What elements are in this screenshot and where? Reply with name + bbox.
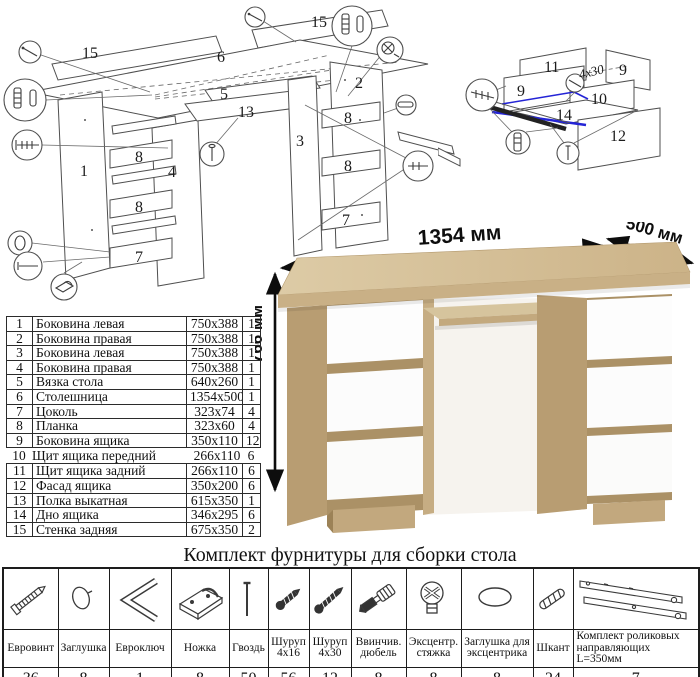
table-row: 2Боковина правая750x3881: [7, 331, 261, 346]
parts-table-lower: 11Щит ящика задний266x1106 12Фасад ящика…: [6, 463, 261, 537]
part-num: 14: [7, 508, 33, 523]
side-panel-1: [58, 92, 110, 280]
part-label-9-right: 9: [619, 62, 627, 79]
part-qty: 2: [243, 522, 261, 537]
part-size: 750x388: [187, 346, 243, 361]
furniture-foot-icon: [172, 571, 228, 627]
part-num: 10: [6, 448, 32, 463]
part-num: 5: [7, 375, 33, 390]
part-size: 346x295: [187, 508, 243, 523]
hardware-qty: 12: [309, 667, 351, 677]
part-label-6: 6: [217, 49, 225, 66]
hardware-name: Эксцентр. стяжка: [406, 630, 461, 668]
part-label-12: 12: [610, 128, 626, 145]
table-row: 9Боковина ящика350x11012: [7, 433, 261, 448]
table-row: 15Стенка задняя675x3502: [7, 522, 261, 537]
hardware-name: Ножка: [171, 630, 229, 668]
part-size: 750x388: [187, 317, 243, 332]
part-qty: 1: [243, 346, 261, 361]
part-num: 4: [7, 360, 33, 375]
part-qty: 6: [243, 508, 261, 523]
part-label-5: 5: [220, 86, 228, 103]
parts-table-upper: 1Боковина левая750x3881 2Боковина правая…: [6, 316, 261, 448]
table-row: 12Фасад ящика350x2006: [7, 478, 261, 493]
table-row: 8Планка323x604: [7, 419, 261, 434]
part-size: 750x388: [187, 331, 243, 346]
hardware-qty: 8: [58, 667, 109, 677]
hardware-name: Евроключ: [109, 630, 171, 668]
assembly-instruction-sheet: 15 15 6 1 2 3 4 5 13 8 8 8 8 7 7: [0, 0, 700, 677]
part-qty: 1: [243, 389, 261, 404]
part-label-11: 11: [544, 59, 559, 76]
part-num: 12: [7, 478, 33, 493]
part-name: Боковина правая: [33, 360, 187, 375]
roller-guide-callout: [466, 79, 498, 111]
part-label-10: 10: [591, 91, 607, 108]
part-name: Полка выкатная: [33, 493, 187, 508]
table-row: 1Боковина левая750x3881: [7, 317, 261, 332]
hardware-table: Евровинт Заглушка Евроключ Ножка Гвоздь …: [2, 567, 700, 677]
part-num: 6: [7, 389, 33, 404]
part-size: 675x350: [187, 522, 243, 537]
part-label-2: 2: [355, 75, 363, 92]
part-name: Боковина правая: [33, 331, 187, 346]
cam-cover-icon: [462, 571, 528, 627]
part-size: 750x388: [187, 360, 243, 375]
part-label-13: 13: [238, 104, 254, 121]
table-row: 3Боковина левая750x3881: [7, 346, 261, 361]
parts-table: 1Боковина левая750x3881 2Боковина правая…: [6, 316, 262, 537]
part-num: 13: [7, 493, 33, 508]
part-qty: 6: [243, 464, 261, 479]
part-name: Щит ящика задний: [33, 464, 187, 479]
part-label-8b: 8: [135, 199, 143, 216]
screw-vertical-callout: [200, 142, 224, 166]
table-row: 4Боковина правая750x3881: [7, 360, 261, 375]
hardware-qty: 8: [406, 667, 461, 677]
eccentric-callout: [377, 37, 403, 63]
part-num: 8: [7, 419, 33, 434]
part-name: Стенка задняя: [33, 522, 187, 537]
hardware-name: Комплект роликовых направляющих L=350мм: [573, 630, 699, 668]
part-name: Боковина левая: [33, 317, 187, 332]
table-row: 11Щит ящика задний266x1106: [7, 464, 261, 479]
hardware-qty: 50: [229, 667, 268, 677]
hardware-qty: 1: [109, 667, 171, 677]
part-name: Вязка стола: [33, 375, 187, 390]
part-qty: 1: [243, 331, 261, 346]
hardware-qty: 8: [171, 667, 229, 677]
hardware-icons-row: [3, 568, 699, 630]
foot-callout: [51, 274, 77, 300]
hardware-name: Шуруп 4x16: [268, 630, 309, 668]
part-qty: 1: [243, 317, 261, 332]
part-num: 9: [7, 433, 33, 448]
part-name: Цоколь: [33, 404, 187, 419]
part-label-15-left: 15: [82, 45, 98, 62]
wood-dowel-icon: [534, 571, 570, 627]
table-row: 7Цоколь323x744: [7, 404, 261, 419]
part-label-1: 1: [80, 163, 88, 180]
part-size: 350x110: [187, 433, 243, 448]
part-num: 11: [7, 464, 33, 479]
table-row: 13Полка выкатная615x3501: [7, 493, 261, 508]
hardware-name: Заглушка: [58, 630, 109, 668]
dowel-screw-callout: [506, 130, 530, 154]
table-row: 5Вязка стола640x2601: [7, 375, 261, 390]
screw-in-dowel-icon: [352, 571, 404, 627]
nail-callout: [557, 142, 579, 164]
part-qty: 1: [243, 360, 261, 375]
hardware-qty: 56: [268, 667, 309, 677]
part-name: Фасад ящика: [33, 478, 187, 493]
hardware-qty: 8: [351, 667, 406, 677]
confirmat-callout: [12, 130, 42, 160]
desk-body: [278, 242, 690, 533]
part-num: 3: [7, 346, 33, 361]
nail-icon: [230, 571, 264, 627]
confirmat-screw-icon: [4, 571, 54, 627]
hardware-name: Шкант: [533, 630, 573, 668]
part-num: 7: [7, 404, 33, 419]
part-name: Боковина ящика: [33, 433, 187, 448]
part-label-9-left: 9: [517, 83, 525, 100]
part-label-7-left: 7: [135, 249, 143, 266]
part-name: Планка: [33, 419, 187, 434]
nail-callout: [19, 41, 41, 63]
part-qty: 1: [243, 493, 261, 508]
hardware-qty: 24: [533, 667, 573, 677]
part-label-14: 14: [556, 107, 572, 124]
eccentric-cam-icon: [407, 571, 457, 627]
part-qty: 6: [243, 478, 261, 493]
hardware-qty: 7: [573, 667, 699, 677]
hardware-qty: 36: [3, 667, 58, 677]
hardware-name: Евровинт: [3, 630, 58, 668]
part-qty: 12: [243, 433, 261, 448]
part-label-4: 4: [168, 164, 176, 181]
screw-large-icon: [310, 571, 350, 627]
hex-key-icon: [110, 571, 168, 627]
hardware-qty-row: 36 8 1 8 50 56 12 8 8 8 24 7: [3, 667, 699, 677]
part-size: 323x60: [187, 419, 243, 434]
part-label-8a: 8: [135, 149, 143, 166]
part-name: Столешница: [33, 389, 187, 404]
rail-fragment: [438, 148, 460, 166]
cap-callout: [8, 231, 32, 255]
desk-photo: 1354 мм 500 мм 766 мм: [255, 222, 700, 540]
screw-callout: [14, 252, 42, 280]
part-size: 640x260: [187, 375, 243, 390]
part-label-8c: 8: [344, 110, 352, 127]
dowel-screw-callout: [403, 151, 433, 181]
part-num: 15: [7, 522, 33, 537]
hardware-qty: 8: [461, 667, 533, 677]
part-size: 1354x500: [187, 389, 243, 404]
part-label-8d: 8: [344, 158, 352, 175]
part-name: Боковина левая: [33, 346, 187, 361]
hardware-names-row: Евровинт Заглушка Евроключ Ножка Гвоздь …: [3, 630, 699, 668]
hardware-name: Гвоздь: [229, 630, 268, 668]
part-qty: 6: [242, 448, 260, 463]
part-qty: 4: [243, 419, 261, 434]
part-size: 266x110: [187, 464, 243, 479]
part-qty: 1: [243, 375, 261, 390]
part-size: 323x74: [187, 404, 243, 419]
cap-plug-icon: [59, 571, 105, 627]
part-name: Дно ящика: [33, 508, 187, 523]
part-name: Щит ящика передний: [32, 448, 192, 463]
part-num: 1: [7, 317, 33, 332]
roller-guides-icon: [574, 571, 694, 627]
part-size: 615x350: [187, 493, 243, 508]
part-label-15-right: 15: [311, 14, 327, 31]
nail-callout-2: [245, 7, 265, 27]
part-qty: 4: [243, 404, 261, 419]
dowel-callout: [4, 79, 46, 121]
part-num: 2: [7, 331, 33, 346]
dowel-pair-callout: [332, 6, 372, 46]
hardware-title: Комплект фурнитуры для сборки стола: [0, 544, 700, 567]
drawer-exploded-diagram: 11 9 9 10 14 12 4x30: [438, 28, 700, 235]
part-size: 350x200: [187, 478, 243, 493]
table-row: 14Дно ящика346x2956: [7, 508, 261, 523]
dowel-small-callout: [396, 95, 416, 115]
table-row: 6Столешница1354x5001: [7, 389, 261, 404]
part-size: 266x110: [192, 448, 242, 463]
screw-small-icon: [269, 571, 307, 627]
hardware-name: Заглушка для эксцентрика: [461, 630, 533, 668]
hardware-name: Ввинчив. дюбель: [351, 630, 406, 668]
width-dimension-label: 1354 мм: [417, 222, 502, 250]
part-label-3: 3: [296, 133, 304, 150]
hardware-name: Шуруп 4x30: [309, 630, 351, 668]
table-row-unbordered: 10 Щит ящика передний 266x110 6: [6, 448, 260, 463]
